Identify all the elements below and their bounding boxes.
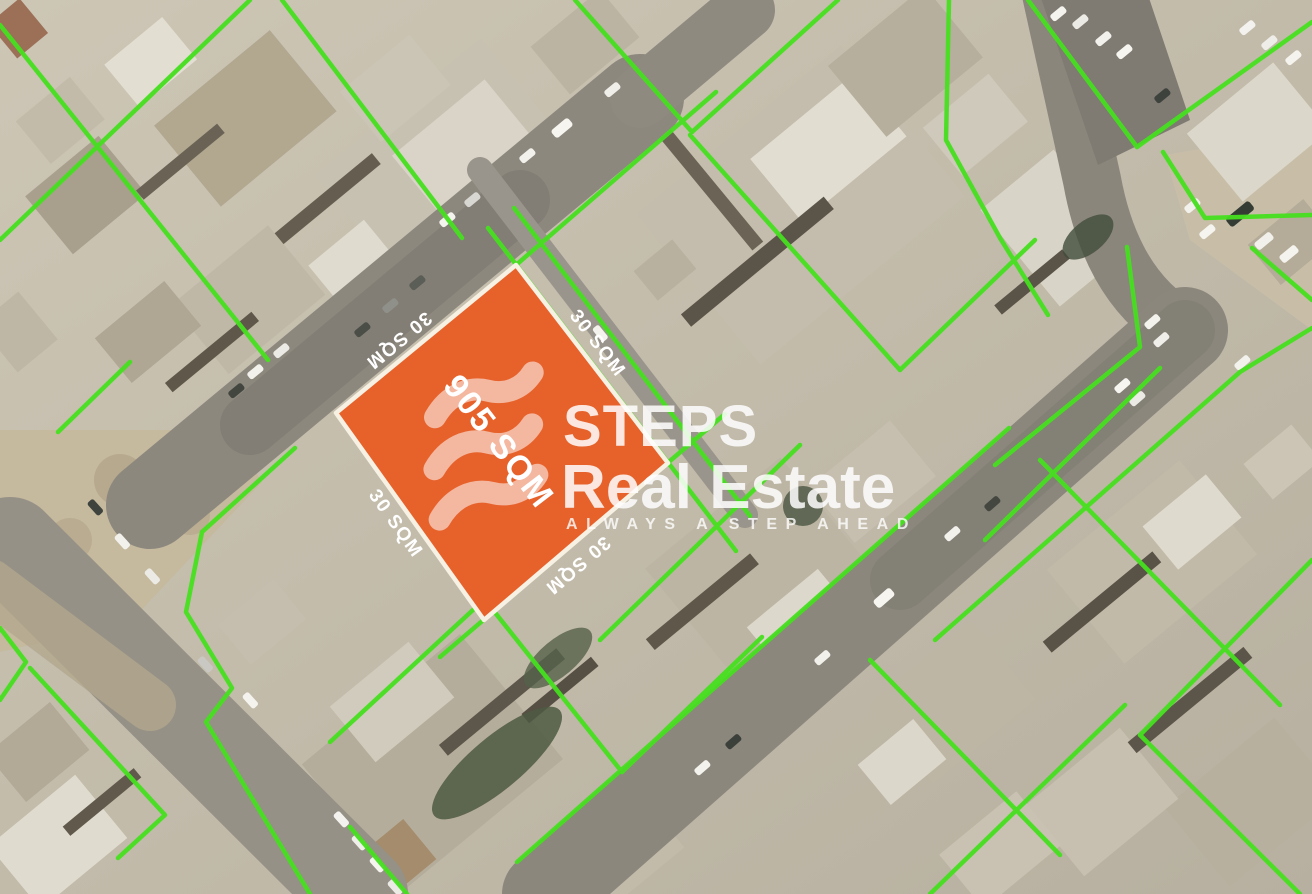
- brand-line2: Real Estate: [561, 453, 895, 522]
- brand-line1: STEPS: [563, 394, 758, 459]
- brand-tagline: ALWAYS A STEP AHEAD: [566, 516, 917, 533]
- map-canvas: 30 SQM 30 SQM 30 SQM 30 SQM 905 SQM STEP…: [0, 0, 1312, 894]
- listing-map-image: 30 SQM 30 SQM 30 SQM 30 SQM 905 SQM STEP…: [0, 0, 1312, 894]
